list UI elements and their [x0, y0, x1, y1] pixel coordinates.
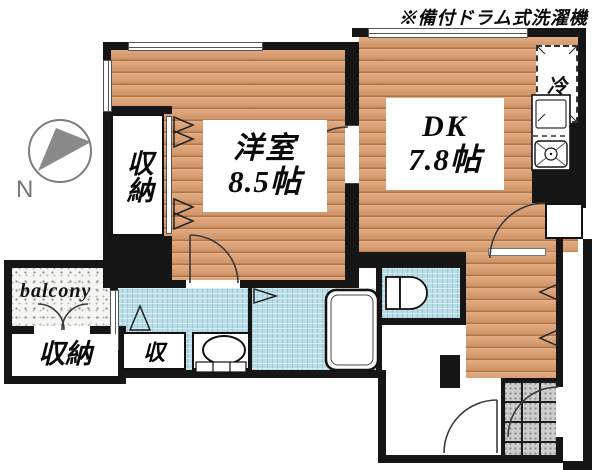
wall — [4, 376, 126, 384]
western-room-label-box: 洋室 8.5帖 — [203, 120, 327, 212]
balcony-label: balcony — [20, 280, 91, 303]
entrance-tile-floor — [503, 378, 556, 456]
dk-name: DK — [422, 111, 468, 143]
wall — [501, 378, 505, 456]
wall — [4, 260, 12, 384]
wall — [103, 370, 386, 378]
wall — [378, 455, 563, 463]
door-sill — [488, 248, 546, 256]
hallway-area — [386, 325, 503, 455]
storage-room-label: 収納 — [38, 340, 92, 369]
wall — [563, 461, 592, 470]
door-gap — [34, 326, 90, 334]
door-gap — [556, 387, 563, 437]
western-room-name: 洋室 — [233, 133, 297, 165]
wall — [378, 372, 386, 455]
window-left-western — [103, 60, 112, 112]
wall — [532, 170, 578, 203]
wash-basin-unit — [192, 332, 250, 370]
wall — [103, 106, 172, 114]
north-arrow-icon — [29, 120, 91, 182]
wall — [4, 260, 118, 268]
wall — [103, 236, 172, 288]
bathroom-floor — [252, 288, 378, 372]
door-gap — [186, 280, 240, 288]
closet-sliding-door — [166, 116, 172, 234]
refrigerator-box: 冷 — [536, 45, 578, 123]
meter-box — [545, 203, 583, 239]
wall — [440, 355, 460, 388]
wall — [460, 268, 466, 318]
storage-room-box: 収納 — [12, 334, 118, 376]
door-gap — [345, 125, 359, 184]
hall-closet-box: 収 — [122, 332, 186, 370]
closet-upper-label: 収納 — [114, 128, 160, 224]
window-top-dk — [368, 28, 528, 38]
refrigerator-label: 冷 — [547, 70, 567, 99]
hall-closet-label: 収 — [143, 335, 165, 367]
wall — [376, 318, 466, 325]
western-room-size: 8.5帖 — [228, 165, 302, 198]
wall — [583, 239, 592, 463]
dk-label-box: DK 7.8帖 — [386, 98, 504, 190]
north-label: N — [16, 176, 33, 204]
floor-plan: ※備付ドラム式洗濯機 収納 冷 — [0, 0, 600, 470]
window-top-western — [128, 42, 263, 51]
dk-size: 7.8帖 — [408, 143, 482, 176]
toilet-floor — [382, 268, 460, 318]
washer-note: ※備付ドラム式洗濯機 — [399, 4, 588, 30]
wall — [352, 252, 466, 268]
